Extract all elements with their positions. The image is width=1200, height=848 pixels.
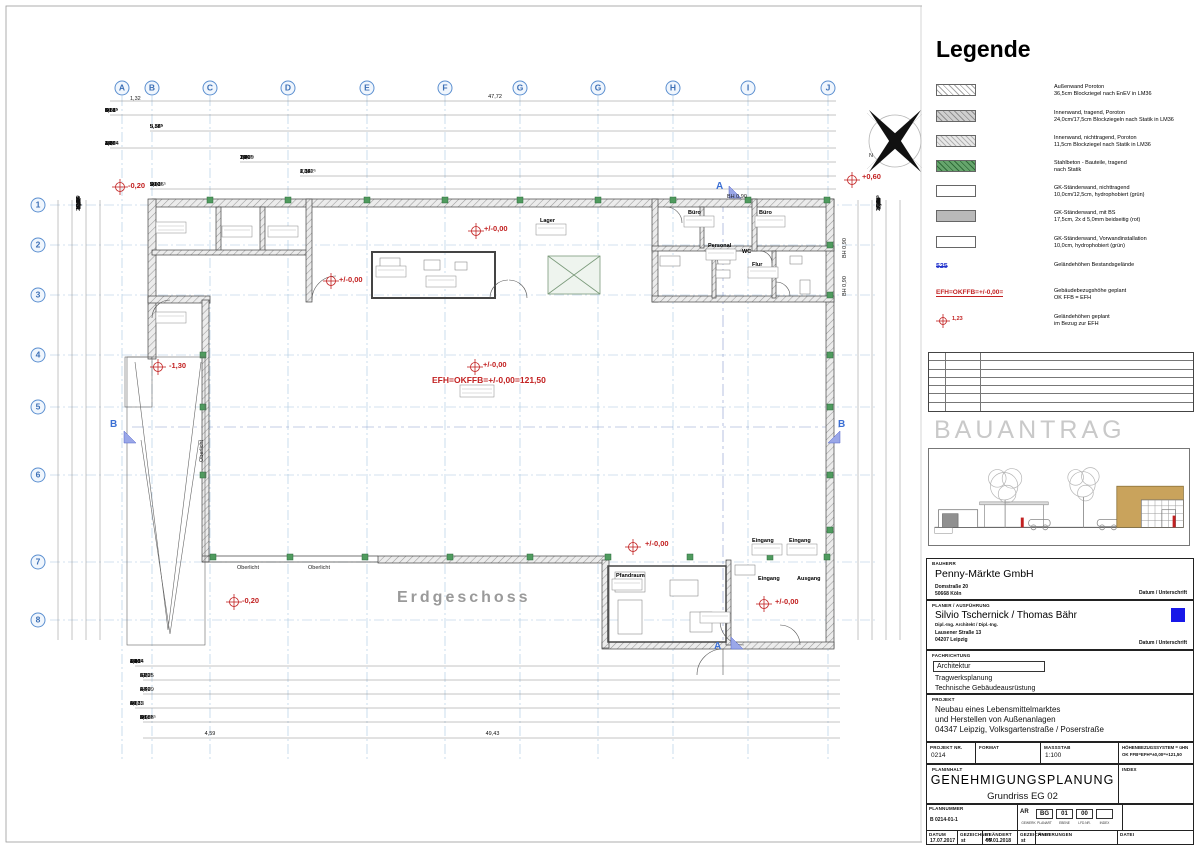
legend-row: EFH=OKFFB=+/-0,00= Gebäudebezugshöhe gep…: [936, 288, 1194, 312]
cell-hoehenbezug: HÖHENBEZUGSSYSTEM = üHN OK FFB=EFH=±0,00…: [1119, 743, 1193, 763]
legend-text: GK-Ständerwand, nichttragend: [1054, 185, 1145, 192]
legend-text: Gebäudebezugshöhe geplant: [1054, 288, 1126, 295]
plannummer-label: PLANNUMMER: [929, 806, 964, 811]
plannummer-cell: PLANNUMMER B 0214-01-1: [927, 805, 1018, 830]
legend-row: Innenwand, nichttragend, Poroton11,5cm B…: [936, 135, 1194, 159]
planinhalt-main-title: GENEHMIGUNGSPLANUNG: [927, 773, 1118, 787]
index-cell: INDEX: [1119, 765, 1193, 803]
legend-text: GK-Ständerwand, Vorwandinstallation: [1054, 236, 1147, 243]
legend-text: 10,0cm/12,5cm, hydrophobiert (grün): [1054, 192, 1145, 199]
datei-label: DATEI: [1120, 832, 1134, 837]
massstab-label: MASSSTAB: [1044, 745, 1071, 750]
projekt-line2: und Herstellen von Außenanlagen: [935, 715, 1056, 724]
legend-text: Stahlbeton - Bauteile, tragend: [1054, 160, 1127, 167]
datum-value: 17.07.2017: [930, 838, 955, 844]
legend-text: im Bezug zur EFH: [1054, 321, 1110, 328]
titleblock-planer: PLANER / AUSFÜHRUNG Silvio Tschernick / …: [926, 600, 1194, 650]
legend-text: Geländehöhen geplant: [1054, 314, 1110, 321]
projekt-line3: 04347 Leipzig, Volksgartenstraße / Poser…: [935, 725, 1104, 734]
plannummer-value: B 0214-01-1: [930, 817, 958, 823]
datum-cell: DATUM 17.07.2017: [927, 831, 958, 844]
legend-text: Innenwand, nichttragend, Poroton: [1054, 135, 1151, 142]
legend-title: Legende: [936, 36, 1031, 63]
legend-text: GK-Ständerwand, mit BS: [1054, 210, 1140, 217]
planer-label: PLANER / AUSFÜHRUNG: [932, 603, 990, 608]
legend-row: GK-Ständerwand, nichttragend10,0cm/12,5c…: [936, 185, 1194, 209]
massstab-value: 1:100: [1045, 752, 1061, 759]
legend-swatch-gk-nichttragend: [936, 185, 976, 197]
planer-name: Silvio Tschernick / Thomas Bähr: [935, 610, 1077, 621]
projektnr-value: 0214: [931, 752, 945, 759]
code-label-gewerk: GEWERK: [1020, 821, 1037, 825]
bauherr-signature-hint: Datum / Unterschrift: [1139, 590, 1187, 596]
legend-row: GK-Ständerwand, Vorwandinstallation10,0c…: [936, 236, 1194, 260]
geaendert-value: 05.01.2018: [986, 838, 1011, 844]
planer-addr2: 04207 Leipzig: [935, 637, 968, 643]
projekt-line1: Neubau eines Lebensmittelmarktes: [935, 705, 1060, 714]
legend-swatch-innenwand-tragend: [936, 110, 976, 122]
legend-row: Innenwand, tragend, Poroton24,0cm/17,5cm…: [936, 110, 1194, 134]
projektnr-label: PROJEKT NR.: [930, 745, 962, 750]
legend-row: Außenwand Poroton36,5cm Blockziegel nach…: [936, 84, 1194, 108]
code-bg: BG: [1036, 809, 1053, 819]
code-01: 01: [1056, 809, 1073, 819]
aenderungen-cell: ÄNDERUNGEN: [1036, 831, 1118, 844]
datei-cell: DATEI: [1118, 831, 1193, 844]
legend-row: 1,23 Geländehöhen geplantim Bezug zur EF…: [936, 314, 1194, 338]
code-00: 00: [1076, 809, 1093, 819]
revision-table: [928, 352, 1194, 412]
aenderungen-label: ÄNDERUNGEN: [1038, 832, 1072, 837]
bauherr-addr2: 50668 Köln: [935, 591, 961, 597]
planer-addr1: Lausener Straße 13: [935, 630, 981, 636]
legend-text: 24,0cm/17,5cm Blockziegeln nach Statik i…: [1054, 117, 1174, 124]
bauherr-name: Penny-Märkte GmbH: [935, 568, 1034, 580]
bauherr-addr1: Domstraße 20: [935, 584, 968, 590]
legend-text: 11,5cm Blockziegel nach Statik in LM36: [1054, 142, 1151, 149]
gezeichnet2-cell: GEZEICHNET st: [1018, 831, 1036, 844]
legend-text: 10,0cm, hydrophobiert (grün): [1054, 243, 1147, 250]
legend-swatch-stahlbeton: [936, 160, 976, 172]
planinhalt-sub-title: Grundriss EG 02: [927, 791, 1118, 802]
legend-swatch-gk-bs: [936, 210, 976, 222]
legend-text: 36,5cm Blockziegel nach EnEV in LM36: [1054, 91, 1152, 98]
legend-text: Außenwand Poroton: [1054, 84, 1152, 91]
titleblock-fachrichtung: FACHRICHTUNG Architektur Tragwerksplanun…: [926, 650, 1194, 694]
fachrichtung-architektur: Architektur: [933, 661, 1045, 672]
code-label-index: INDEX: [1096, 821, 1113, 825]
fachrichtung-tga: Technische Gebäudeausrüstung: [935, 685, 1035, 692]
legend-text: Innenwand, tragend, Poroton: [1054, 110, 1174, 117]
hoehenbezug-line2: OK FFB=EFH=±0,00=+121,50: [1122, 752, 1182, 757]
legend-swatch-innenwand-nichttragend: [936, 135, 976, 147]
legend-row: GK-Ständerwand, mit BS17,5cm, 2x d 5,0mm…: [936, 210, 1194, 234]
elevation-thumbnail: [928, 448, 1190, 546]
drawing-sheet: ABCDEFGGHIJ1234567847,72101,824,31305,08…: [0, 0, 1200, 848]
index-label: INDEX: [1122, 767, 1137, 772]
geaendert-cell: GEÄNDERT AM 05.01.2018: [983, 831, 1018, 844]
legend-text: nach Statik: [1054, 167, 1127, 174]
legend-symbol-gelaendehoehe: 525: [936, 263, 948, 270]
north-arrow-icon: [867, 110, 923, 172]
planer-title: Dipl.-Ing. Architekt / Dipl.-Ing.: [935, 622, 998, 627]
planinhalt-label: PLANINHALT: [932, 767, 962, 772]
legend-symbol-bezugshoehe: EFH=OKFFB=+/-0,00=: [936, 289, 1003, 297]
gezeichnet-cell: GEZEICHNET st: [958, 831, 983, 844]
format-label: FORMAT: [979, 745, 999, 750]
cell-format: FORMAT: [976, 743, 1041, 763]
titleblock-projekt: PROJEKT Neubau eines Lebensmittelmarktes…: [926, 694, 1194, 742]
code-label-ebene: EBENE: [1056, 821, 1073, 825]
titleblock-bauherr: BAUHERR Penny-Märkte GmbH Domstraße 20 5…: [926, 558, 1194, 600]
cell-massstab: MASSSTAB 1:100: [1041, 743, 1119, 763]
bauantrag-watermark: BAUANTRAG: [934, 416, 1126, 445]
gezeichnet-value: st: [961, 838, 965, 844]
legend-row: Stahlbeton - Bauteile, tragendnach Stati…: [936, 160, 1194, 184]
fachrichtung-label: FACHRICHTUNG: [932, 653, 970, 658]
right-panel: Legende Außenwand Poroton36,5cm Blockzie…: [922, 0, 1200, 848]
gezeichnet2-value: st: [1021, 838, 1025, 844]
projekt-label: PROJEKT: [932, 697, 955, 702]
legend-text: OK FFB = EFH: [1054, 295, 1126, 302]
titleblock-bottom: PLANNUMMER B 0214-01-1 AR BG 01 00 GEWER…: [926, 804, 1194, 845]
code-ar: AR: [1020, 809, 1029, 815]
code-empty1: [1096, 809, 1113, 819]
titleblock-info-row: PROJEKT NR. 0214 FORMAT MASSSTAB 1:100 H…: [926, 742, 1194, 764]
legend-row: 525 Geländehöhen Bestandsgelände: [936, 262, 1194, 286]
bauherr-label: BAUHERR: [932, 561, 956, 566]
planer-signature-hint: Datum / Unterschrift: [1139, 640, 1187, 646]
red-cross-icon: [936, 314, 950, 328]
legend-symbol-hoehenwert: 1,23: [952, 316, 963, 322]
legend-swatch-aussenwand: [936, 84, 976, 96]
legend-text: Geländehöhen Bestandsgelände: [1054, 262, 1134, 269]
datum-label: DATUM: [929, 832, 946, 837]
code-label-planart: PLANART: [1036, 821, 1053, 825]
legend-text: 17,5cm, 2x d 5,0mm beidseitig (rot): [1054, 217, 1140, 224]
plan-code-cell: AR BG 01 00 GEWERK PLANART EBENE LFD.NR.…: [1018, 805, 1123, 830]
code-label-lfdnr: LFD.NR.: [1076, 821, 1093, 825]
planer-logo: [1171, 608, 1185, 622]
legend-swatch-gk-vorwand: [936, 236, 976, 248]
hoehenbezug-line1: HÖHENBEZUGSSYSTEM = üHN: [1122, 745, 1188, 750]
fachrichtung-tragwerk: Tragwerksplanung: [935, 675, 992, 682]
planinhalt-cell: PLANINHALT GENEHMIGUNGSPLANUNG Grundriss…: [927, 765, 1119, 803]
cell-projektnr: PROJEKT NR. 0214: [927, 743, 976, 763]
titleblock-planinhalt: PLANINHALT GENEHMIGUNGSPLANUNG Grundriss…: [926, 764, 1194, 804]
